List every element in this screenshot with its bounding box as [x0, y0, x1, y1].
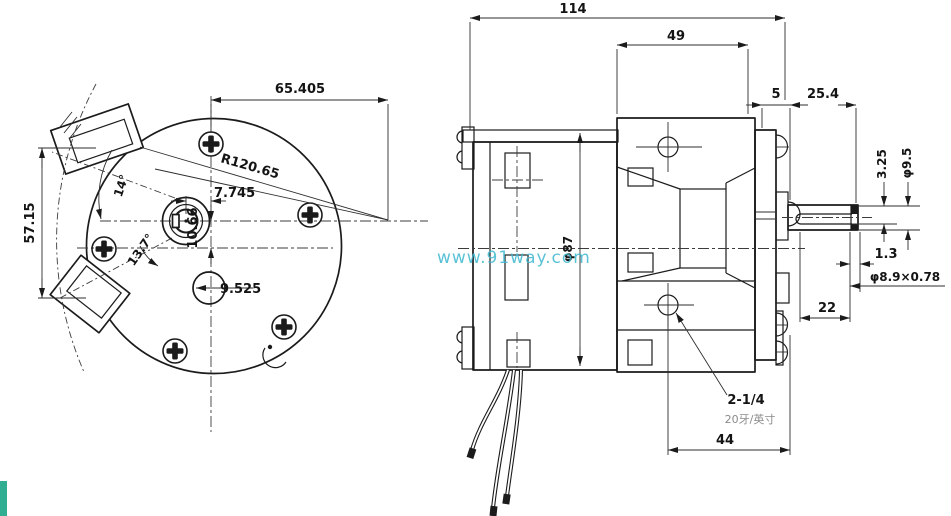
output-shaft — [782, 205, 872, 230]
front-body-outline — [87, 119, 342, 374]
engineering-drawing-canvas: 65.405 57.15 R120.65 7.745 10.66 14° 13.… — [0, 0, 951, 516]
dim-hole-spacing: 44 — [716, 433, 734, 448]
dim-flat-length: 22 — [818, 301, 836, 316]
thread-pitch-note: 20牙/英寸 — [725, 412, 776, 426]
dim-boss-length: 5 — [771, 87, 780, 102]
dim-groove-width: 1.3 — [874, 247, 897, 262]
dim-hole: 9.525 — [220, 282, 261, 297]
dim-shaft-length: 25.4 — [807, 87, 839, 102]
dim-groove-diameter: φ8.9×0.78 — [870, 270, 940, 284]
gear-motor-drawing: 65.405 57.15 R120.65 7.745 10.66 14° 13.… — [0, 0, 951, 516]
dim-angle-upper: 14° — [111, 173, 131, 199]
dim-hub-offset-y: 10.66 — [186, 207, 201, 248]
watermark-text: www.91way.com — [437, 248, 591, 268]
dim-radius: R120.65 — [219, 151, 281, 182]
dim-overall-length: 114 — [559, 2, 586, 17]
gearbox — [617, 118, 755, 372]
dim-angle-lower: 13.7° — [125, 231, 157, 268]
dim-hub-offset-x: 7.745 — [214, 186, 255, 201]
dim-shaft-diameter: φ9.5 — [900, 148, 914, 179]
dim-shaft-flat-height: 3.25 — [875, 149, 889, 179]
corner-artifact — [0, 481, 7, 516]
dim-height: 57.15 — [23, 202, 38, 243]
front-view: 65.405 57.15 R120.65 7.745 10.66 14° 13.… — [23, 82, 428, 432]
upper-mounting-tab — [51, 104, 144, 174]
lead-wires — [467, 370, 521, 516]
thread-size-note: 2-1/4 — [727, 393, 764, 408]
side-dimensions — [470, 18, 945, 455]
output-flange — [755, 130, 800, 365]
radius-leader — [140, 147, 388, 220]
dim-gearbox-length: 49 — [667, 29, 685, 44]
dim-width: 65.405 — [275, 82, 325, 97]
